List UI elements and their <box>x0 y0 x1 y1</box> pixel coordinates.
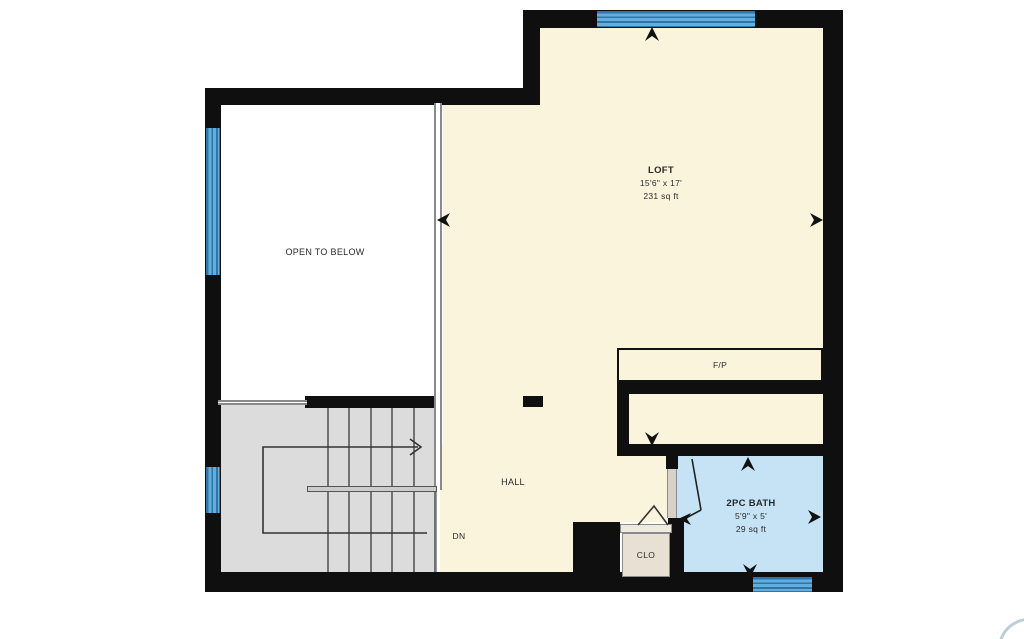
bath-label-block: 2PC BATH 5'9" x 5' 29 sq ft <box>691 497 811 536</box>
loft-name: LOFT <box>601 164 721 177</box>
stair-direction-path <box>263 439 427 533</box>
bath-area: 29 sq ft <box>691 523 811 536</box>
loft-label-block: LOFT 15'6" x 17' 231 sq ft <box>601 164 721 203</box>
arrow-left-bath-door <box>678 513 691 525</box>
stair-treads-lower-flight <box>328 492 435 572</box>
arrow-left-open-to-below <box>437 213 450 227</box>
arrow-down-chase <box>645 432 659 446</box>
bath-dimensions: 5'9" x 5' <box>691 510 811 523</box>
stairs-dn-label: DN <box>444 530 474 543</box>
bath-name: 2PC BATH <box>691 497 811 510</box>
arrow-down-bath <box>743 564 757 578</box>
floorplan-canvas: F/P CLO <box>0 0 1024 639</box>
arrow-up-top-window <box>645 27 659 41</box>
closet-bifold-door <box>638 506 668 525</box>
hall-label: HALL <box>483 476 543 489</box>
direction-arrows <box>437 27 823 578</box>
arrow-up-bath <box>741 457 755 471</box>
open-to-below-label: OPEN TO BELOW <box>255 246 395 259</box>
loft-area: 231 sq ft <box>601 190 721 203</box>
arrow-right-loft <box>810 213 823 227</box>
floorplan-linework <box>0 0 1024 639</box>
loft-dimensions: 15'6" x 17' <box>601 177 721 190</box>
